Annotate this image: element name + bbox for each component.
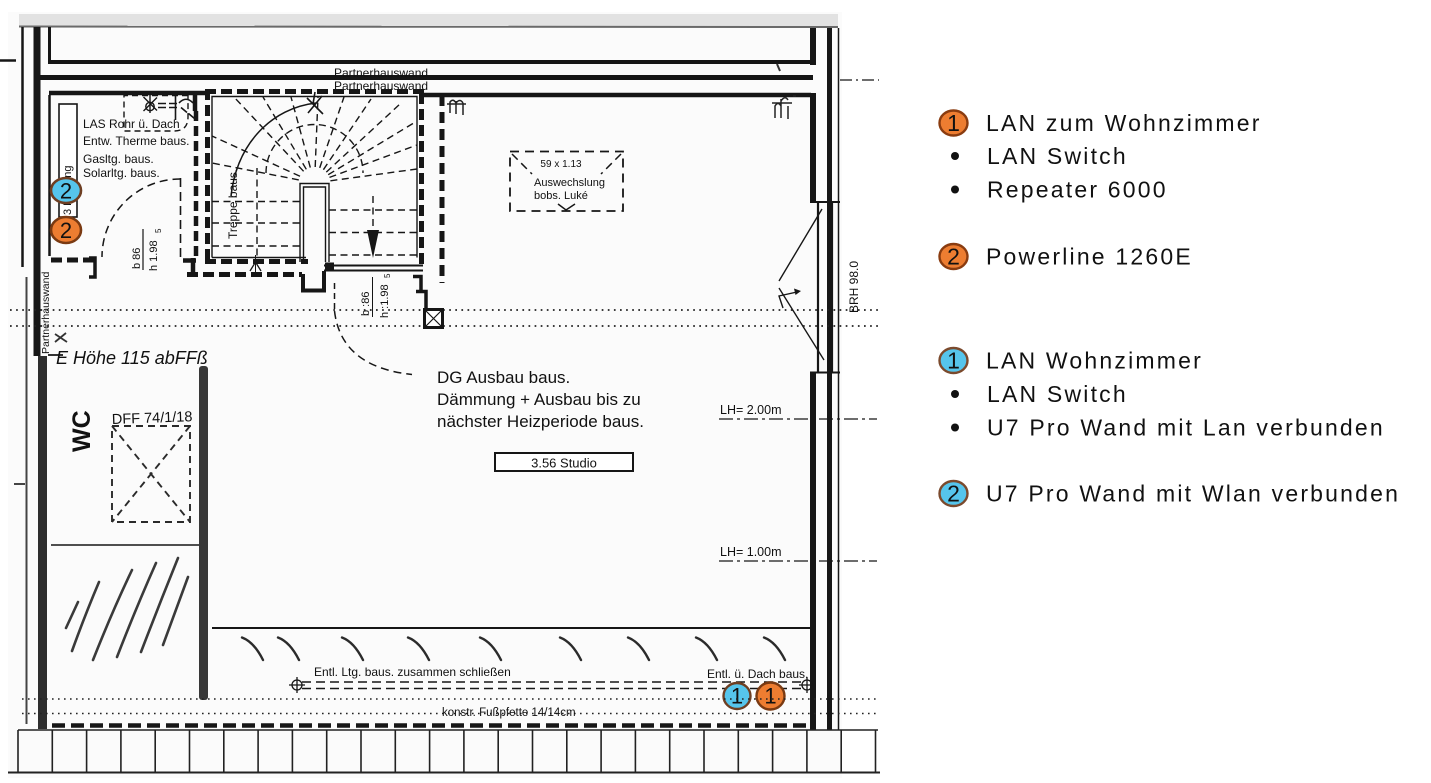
svg-text:Partnerhauswand: Partnerhauswand [40,272,52,354]
svg-text:konstr. Fußpfette 14/14cm: konstr. Fußpfette 14/14cm [442,707,576,719]
svg-text:2: 2 [60,218,72,243]
svg-text:U7 Pro Wand mit Lan verbunden: U7 Pro Wand mit Lan verbunden [987,415,1385,441]
svg-text:b 86: b 86 [131,248,143,269]
svg-text:Auswechslung: Auswechslung [534,177,605,189]
svg-text:2: 2 [947,481,960,507]
svg-text:Entl. ü. Dach baus.: Entl. ü. Dach baus. [707,667,808,681]
svg-text:LAN zum Wohnzimmer: LAN zum Wohnzimmer [986,110,1262,136]
svg-text:Treppe baus.: Treppe baus. [226,169,240,239]
svg-text:h 1.98: h 1.98 [148,240,160,271]
svg-text:LAN Switch: LAN Switch [987,381,1128,407]
svg-text:WC: WC [68,410,96,452]
svg-text:E Höhe 115 abFFß: E Höhe 115 abFFß [56,348,208,368]
svg-text:Entl. Ltg. baus. zusammen schl: Entl. Ltg. baus. zusammen schließen [314,665,511,679]
svg-text:nächster Heizperiode baus.: nächster Heizperiode baus. [437,412,644,431]
svg-text:2: 2 [947,244,960,270]
svg-text:Entw. Therme baus.: Entw. Therme baus. [83,134,190,148]
svg-text:LH= 1.00m: LH= 1.00m [720,545,782,559]
svg-text:LAN Wohnzimmer: LAN Wohnzimmer [986,348,1203,374]
svg-text:5: 5 [154,228,163,233]
svg-text:LH= 2.00m: LH= 2.00m [720,403,782,417]
svg-text:U7 Pro Wand mit Wlan verbunden: U7 Pro Wand mit Wlan verbunden [986,481,1400,507]
svg-text:b :86: b :86 [360,292,372,316]
svg-text:Dämmung + Ausbau bis zu: Dämmung + Ausbau bis zu [437,390,641,409]
svg-text:1: 1 [731,684,743,709]
svg-text:h :1.98: h :1.98 [379,284,391,318]
svg-text:DG Ausbau baus.: DG Ausbau baus. [437,368,570,387]
svg-text:59 x 1.13: 59 x 1.13 [540,159,582,170]
svg-text:Gasltg. baus.: Gasltg. baus. [83,152,154,166]
svg-text:Solarltg. baus.: Solarltg. baus. [83,166,160,180]
svg-text:1: 1 [947,110,960,136]
svg-text:LAS Rohr ü. Dach: LAS Rohr ü. Dach [83,117,180,131]
svg-text:bobs. Luké: bobs. Luké [534,190,588,202]
svg-text:3.56 Studio: 3.56 Studio [531,456,597,471]
svg-text:5: 5 [383,273,392,278]
svg-text:LAN Switch: LAN Switch [987,143,1128,169]
svg-text:2: 2 [60,179,72,204]
svg-text:Partnerhauswand: Partnerhauswand [334,66,428,80]
svg-text:1: 1 [947,348,960,374]
svg-text:1: 1 [764,684,776,709]
svg-text:Powerline 1260E: Powerline 1260E [986,244,1193,270]
svg-text:BRH 98.0: BRH 98.0 [847,261,861,313]
svg-text:Repeater 6000: Repeater 6000 [987,177,1168,203]
